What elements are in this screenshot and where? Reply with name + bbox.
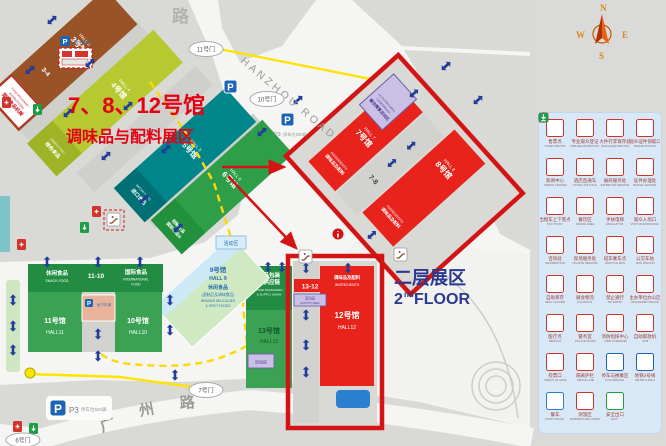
legend-label-cn: 餐饮区: [578, 217, 592, 223]
legend-label-en: BAGGAGE DEPOSIT: [601, 144, 629, 148]
legend-label-cn: 现场服务处: [574, 256, 597, 262]
hall9-name-en: HALL 9: [209, 276, 227, 282]
legend-label-cn: 公交车站: [636, 256, 654, 262]
crowd-icon: [576, 236, 594, 254]
teal-road-band: [0, 196, 10, 252]
legend-label-cn: 酒店直通车: [574, 178, 597, 184]
legend-label-en: TEMPERATURE CHECK: [570, 417, 600, 421]
p3-right-capacity: 停车位280辆: [283, 131, 307, 138]
legend-row: 餐车FOOD TRUCK测温区TEMPERATURE CHECK安全出口EXIT: [540, 392, 660, 431]
underground-garage-label: 地下车库: [74, 39, 91, 46]
legend-item-barrier: 隔离护栏FENCE LINE: [570, 353, 600, 392]
info-point-icon: [333, 229, 344, 240]
legend-item-meeting: 证件办理处BADGE CENTER: [630, 158, 660, 197]
hall11-10-link-label: 11-10: [88, 273, 105, 280]
legend-item-bus: 公交车站BUS STATION: [630, 236, 660, 275]
hall13-name-en: HALL13: [260, 339, 278, 345]
hall11-name-cn: 11号馆: [44, 316, 65, 325]
medical-icon: [546, 314, 564, 332]
floor-label-word: FLOOR: [414, 291, 470, 308]
locker-icon: [546, 275, 564, 293]
legend-row: 出租车上下客点TAXI POINT餐饮区DINING AREA手扶电梯ESCAL…: [540, 197, 660, 236]
legend-label-en: HOTEL SHUTTLE: [573, 183, 596, 187]
gate-11-label: 11号门: [197, 46, 215, 54]
legend-label-en: VISITOR ENTRANCE: [631, 222, 659, 226]
legend-label-cn: 警务室: [578, 334, 592, 340]
legend-label-cn: 安全出口: [606, 412, 624, 418]
parking-icon: P: [284, 116, 291, 127]
compass-n: N: [600, 3, 607, 13]
p3-left-capacity: 停车位550辆: [81, 406, 107, 413]
legend-item-metro: 地铁2号线METRO LINE 2: [630, 353, 660, 392]
legend-label-en: ORGANIZER OFFICE: [631, 300, 659, 304]
legend-label-cn: 隔离护栏: [576, 373, 594, 379]
hall12-activity-cn: 活动区: [305, 296, 316, 301]
bus-icon: [636, 236, 654, 254]
legend-label-en: NO ENTRY: [608, 300, 623, 304]
legend-label-cn: 手扶电梯: [606, 217, 624, 223]
legend-label-cn: 展会物流: [576, 295, 594, 301]
legend-label-cn: 地铁2号线: [635, 373, 656, 379]
legend-label-en: PRESS CENTER: [544, 183, 566, 187]
legend-label-cn: 观众证件领取口: [630, 139, 660, 145]
parking-icon: P: [87, 302, 91, 308]
legend-label-cn: 观众入场口: [634, 217, 657, 223]
compass-e: E: [622, 30, 628, 40]
legend-item-escalator: 手扶电梯ESCALATOR: [600, 197, 630, 236]
hall10-tag-cn: 国际食品: [125, 268, 148, 276]
legend-label-cn: 大件行李寄存处: [600, 139, 630, 145]
legend-label-en: LOGISTICS: [577, 300, 592, 304]
legend-row: 检票口CHECK-IN GATE隔离护栏FENCE LINEP停车与换乘区P+R…: [540, 353, 660, 392]
activity-zone-label: 活动区: [223, 240, 238, 247]
escalator-icon: [606, 197, 624, 215]
noentry-icon: [606, 275, 624, 293]
legend-item-hotel: 酒店直通车HOTEL SHUTTLE: [570, 158, 600, 197]
legend-label-cn: 餐车: [551, 412, 560, 418]
p3-left-label: P3: [69, 406, 79, 415]
legend-item-service-desk: 展商服务处EXHIBITOR SERVICE: [600, 158, 630, 197]
legend-row: 售票点TICKET BOOTH专业观众登记PRE-REGISTRATION大件行…: [540, 119, 660, 158]
legend-label-cn: 售票点: [548, 139, 562, 145]
legend-label-en: MEDICAL: [549, 339, 562, 343]
legend-item-entrance: 观众入场口VISITOR ENTRANCE: [630, 197, 660, 236]
legend-label-en: P+R PARKING: [605, 378, 624, 382]
legend-label-cn: 主办单位办公区: [630, 295, 660, 301]
parking-icon: P: [227, 83, 234, 94]
floor-label-cn: 二层展区: [394, 268, 466, 288]
gate-6-label: 6号门: [15, 437, 30, 445]
hall10-tag-en1: INTERNATIONAL: [123, 278, 148, 282]
legend-label-en: INFORMATION: [545, 261, 565, 265]
legend-item-press: 新闻中心PRESS CENTER: [540, 158, 570, 197]
legend-label-en: SHUTTLE BUS: [605, 261, 625, 265]
title-line1: 7、8、12号馆: [68, 93, 205, 118]
barrier-icon: [576, 353, 594, 371]
legend-item-dining: 餐饮区DINING AREA: [570, 197, 600, 236]
hall10-tag-en2: FOOD: [131, 283, 141, 287]
legend-label-en: SELF LOCKER: [545, 300, 565, 304]
logistics-icon: [576, 275, 594, 293]
legend-item-gate-check: 检票口CHECK-IN GATE: [540, 353, 570, 392]
legend-item-baggage: 大件行李寄存处BAGGAGE DEPOSIT: [600, 119, 630, 158]
legend-label-cn: 咨询处: [548, 256, 562, 262]
hall9-tag-en2: & SPICY FOODS: [206, 304, 231, 308]
register-icon: [576, 119, 594, 137]
underground-garage-label: 地下车库: [97, 302, 112, 307]
road-name-top: 路: [172, 6, 190, 26]
underground-garage-south: P 地下车库: [82, 295, 115, 321]
hall10-name-cn: 10号馆: [127, 316, 149, 325]
floor-label-num: 2: [394, 291, 403, 308]
thermo-icon: [576, 392, 594, 410]
legend-row: 自助寄存SELF LOCKER展会物流LOGISTICS禁止通行NO ENTRY…: [540, 275, 660, 314]
hall12-activity-en: ACTIVITY AREA: [300, 301, 320, 305]
gz-char-2: 州: [137, 401, 156, 421]
info-icon: [546, 236, 564, 254]
hall12-name-en: HALL12: [338, 325, 356, 331]
legend-item-noentry: 禁止通行NO ENTRY: [600, 275, 630, 314]
hall13-12-link-label: 13-12: [302, 284, 319, 291]
compass-s: S: [599, 51, 604, 61]
legend-label-cn: 禁止通行: [606, 295, 624, 301]
dining-icon: [576, 197, 594, 215]
legend-item-exit: 安全出口EXIT: [600, 392, 630, 431]
police-icon: [576, 314, 594, 332]
blue-service-block: [336, 390, 370, 408]
hotel-icon: [576, 158, 594, 176]
hall11-tag-en: SNACK FOOD: [45, 279, 69, 283]
legend-label-en: BUS STATION: [636, 261, 655, 265]
service-desk-icon: [606, 158, 624, 176]
hall9-tag-en1: BRAISED DELICACIES: [201, 299, 235, 303]
halls-10-11: 休闲食品 SNACK FOOD 11-10 国际食品 INTERNATIONAL…: [28, 264, 163, 352]
hall9-tag-cn2: (卤制品及调味食品): [202, 292, 236, 297]
legend-label-en: FIRE COMMAND: [604, 339, 626, 343]
legend-item-fire: 消防指挥中心FIRE COMMAND: [600, 314, 630, 353]
legend-label-cn: 消防指挥中心: [602, 334, 629, 340]
hall12-name-cn: 12号馆: [335, 310, 360, 320]
legend-label-cn: 测温区: [578, 412, 592, 418]
shuttle-icon: [606, 236, 624, 254]
legend-label-en: PRE-REGISTRATION: [571, 144, 599, 148]
legend-label-en: BADGE CENTER: [634, 183, 657, 187]
legend-label-en: EXHIBITOR SERVICE: [601, 183, 630, 187]
gz-char-3: 路: [179, 393, 196, 412]
exhibition-map-page: 国际食品机械 INTERNATIONAL FOOD MACHINERY 3-4 …: [0, 0, 666, 446]
press-icon: [546, 158, 564, 176]
legend-label-en: CHECK-IN GATE: [544, 378, 566, 382]
legend-item-ticket: 售票点TICKET BOOTH: [540, 119, 570, 158]
legend-label-en: TAXI POINT: [547, 222, 563, 226]
legend-item-crowd: 现场服务处ON-SITE SERVICE: [570, 236, 600, 275]
legend-label-en: FENCE LINE: [577, 378, 594, 382]
hall11-tag-cn: 休闲食品: [45, 269, 69, 277]
hall9-name-cn: 9号馆: [210, 265, 227, 274]
legend-item-medical: 医疗点MEDICAL: [540, 314, 570, 353]
legend-item-atm: 自助取款机ATM: [630, 314, 660, 353]
legend-label-cn: 自助寄存: [546, 295, 564, 301]
legend-label-cn: 证件办理处: [634, 178, 657, 184]
legend-label-en: METRO LINE 2: [635, 378, 655, 382]
hall12-tag-cn: 调味品及配料: [334, 274, 361, 281]
legend-label-en: FOOD TRUCK: [546, 417, 565, 421]
legend-item-office: 主办单位办公区ORGANIZER OFFICE: [630, 275, 660, 314]
hall13-tag-en1: FOOD PACKAGING: [255, 288, 283, 292]
baggage-icon: [606, 119, 624, 137]
legend-label-cn: 停车与换乘区: [602, 373, 629, 379]
fire-icon: [606, 314, 624, 332]
legend-item-parking: P停车与换乘区P+R PARKING: [600, 353, 630, 392]
hall13-tag-en2: & SUPPLY CHAIN: [257, 293, 282, 297]
title-line2: 调味品与配料展区: [66, 127, 194, 146]
legend-label-cn: 展商服务处: [604, 178, 627, 184]
meeting-icon: [636, 158, 654, 176]
hall12-tag-en: INGREDIENTS: [335, 283, 360, 287]
entrance-icon: [636, 197, 654, 215]
compass-w: W: [576, 30, 585, 40]
legend-item-shuttle: 班车乘车点SHUTTLE BUS: [600, 236, 630, 275]
legend-label-en: TICKET BOOTH: [544, 144, 565, 148]
gate-7-label: 7号门: [198, 387, 213, 395]
legend-label-en: POLICE ROOM: [575, 339, 595, 343]
legend-panel: 售票点TICKET BOOTH专业观众登记PRE-REGISTRATION大件行…: [538, 112, 662, 434]
legend-item-register: 专业观众登记PRE-REGISTRATION: [570, 119, 600, 158]
hall11-name-en: HALL11: [46, 330, 64, 336]
parking-icon: P: [62, 37, 67, 46]
exit-icon: [606, 392, 624, 410]
hall13-name-cn: 13号馆: [258, 326, 280, 335]
legend-item-logistics: 展会物流LOGISTICS: [570, 275, 600, 314]
hall13-activity-label: 活动区: [255, 359, 268, 366]
legend-label-cn: 班车乘车点: [604, 256, 627, 262]
office-icon: [636, 275, 654, 293]
legend-label-en: ATM: [642, 339, 648, 343]
underground-garage-nw: P 地下车库: [59, 36, 92, 68]
metro-icon: [636, 353, 654, 371]
legend-item-locker: 自助寄存SELF LOCKER: [540, 275, 570, 314]
p3-right-label: P3: [274, 132, 281, 138]
legend-item-foodtruck: 餐车FOOD TRUCK: [540, 392, 570, 431]
legend-row: 新闻中心PRESS CENTER酒店直通车HOTEL SHUTTLE展商服务处E…: [540, 158, 660, 197]
legend-item-info: 咨询处INFORMATION: [540, 236, 570, 275]
legend-label-en: BADGE PICKUP: [634, 144, 656, 148]
legend-label-en: EXIT: [612, 417, 618, 421]
legend-label-cn: 医疗点: [548, 334, 562, 340]
legend-row: 医疗点MEDICAL警务室POLICE ROOM消防指挥中心FIRE COMMA…: [540, 314, 660, 353]
legend-item-thermo: 测温区TEMPERATURE CHECK: [570, 392, 600, 431]
badge-icon: [636, 119, 654, 137]
gate-check-icon: [546, 353, 564, 371]
legend-label-cn: 自助取款机: [634, 334, 657, 340]
legend-label-cn: 检票口: [548, 373, 562, 379]
legend-label-cn: 出租车上下客点: [540, 217, 570, 223]
legend-label-en: DINING AREA: [576, 222, 594, 226]
legend-label-en: ON-SITE SERVICE: [573, 261, 598, 265]
legend-item-police: 警务室POLICE ROOM: [570, 314, 600, 353]
legend-row: 咨询处INFORMATION现场服务处ON-SITE SERVICE班车乘车点S…: [540, 236, 660, 275]
legend-label-cn: 专业观众登记: [572, 139, 599, 145]
parking-icon: P: [606, 353, 624, 371]
legend-item-badge: 观众证件领取口BADGE PICKUP: [630, 119, 660, 158]
hall9-tag-cn1: 休闲食品: [207, 284, 228, 291]
hall10-name-en: HALL10: [129, 330, 147, 336]
activity-zone-blue: 活动区: [216, 236, 246, 249]
foodtruck-icon: [546, 392, 564, 410]
legend-item-taxi: 出租车上下客点TAXI POINT: [540, 197, 570, 236]
gate-10-label: 10号门: [258, 96, 277, 104]
taxi-icon: [546, 197, 564, 215]
legend-label-en: ESCALATOR: [606, 222, 623, 226]
floor-label-sup: nd: [404, 290, 414, 299]
parking-icon: P: [54, 402, 62, 416]
legend-label-cn: 新闻中心: [546, 178, 564, 184]
atm-icon: [636, 314, 654, 332]
